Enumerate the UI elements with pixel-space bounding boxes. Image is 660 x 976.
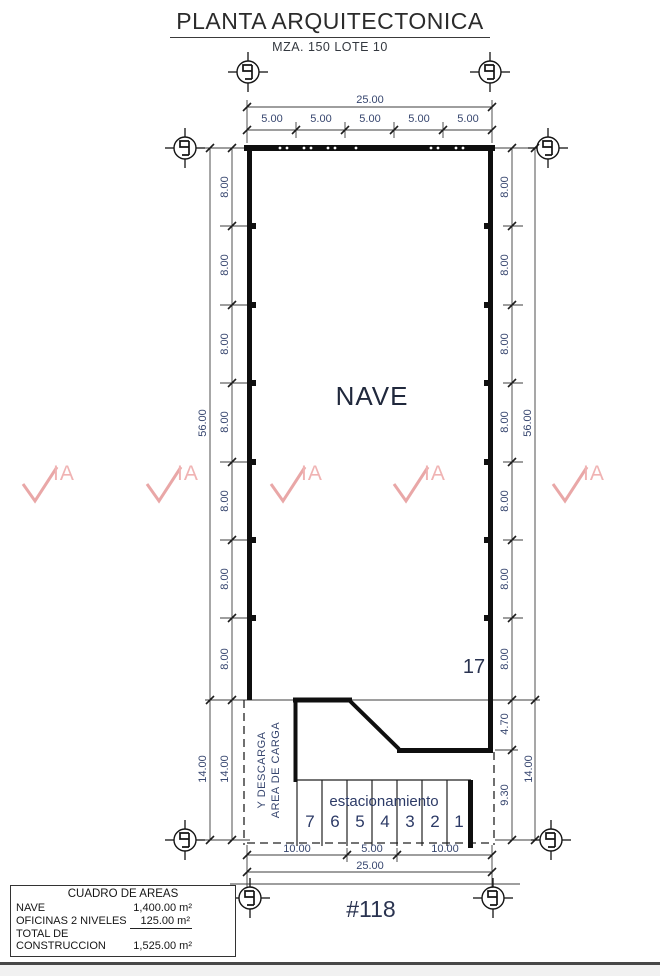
loading-area-line2: AREA DE CARGA	[269, 695, 283, 845]
parking-stall-number: 4	[373, 812, 397, 832]
loading-area-line1: Y DESCARGA	[255, 695, 269, 845]
dim-left-seg: 8.00	[219, 243, 231, 287]
parking-label: estacionamiento	[314, 793, 454, 810]
dim-top-total: 25.00	[340, 94, 400, 106]
dim-left-total: 56.00	[197, 401, 209, 445]
nave-label: NAVE	[302, 381, 442, 412]
areas-table: CUADRO DE AREAS NAVE 1,400.00 m² OFICINA…	[10, 885, 236, 957]
parking-stall-number: 2	[423, 812, 447, 832]
dim-left-seg: 8.00	[219, 557, 231, 601]
dim-right-lower-total: 14.00	[523, 747, 535, 791]
dim-left-seg: 8.00	[219, 400, 231, 444]
areas-row-value: 1,525.00 m²	[133, 940, 192, 952]
parking-stall-number: 5	[348, 812, 372, 832]
dim-right-seg: 8.00	[499, 557, 511, 601]
grid-bubble-top-left	[228, 52, 268, 92]
grid-bubble-top-right	[470, 52, 510, 92]
dim-bottom-seg: 10.00	[421, 843, 469, 855]
areas-row-label: NAVE	[16, 902, 45, 914]
areas-row-label-line2: CONSTRUCCION	[16, 940, 106, 952]
dim-right-total: 56.00	[522, 401, 534, 445]
street-address-label: #118	[311, 896, 431, 923]
grid-bubble-right-upper	[528, 128, 568, 168]
areas-table-title: CUADRO DE AREAS	[11, 888, 235, 900]
parking-stall-number: 6	[323, 812, 347, 832]
dim-right-470: 4.70	[499, 702, 511, 746]
dim-right-seg: 8.00	[499, 400, 511, 444]
dim-top-seg: 5.00	[301, 113, 341, 125]
dim-bottom-seg: 5.00	[350, 843, 394, 855]
dim-left-seg: 8.00	[219, 637, 231, 681]
dim-top-seg: 5.00	[399, 113, 439, 125]
architectural-plan-sheet: IA IA IA IA IA	[0, 0, 660, 976]
parking-stall-number: 1	[447, 812, 471, 832]
areas-row-label: OFICINAS 2 NIVELES	[16, 915, 127, 927]
areas-row-value: 1,400.00 m²	[133, 902, 192, 914]
sheet-bottom-margin	[0, 965, 660, 976]
dim-bottom-total: 25.00	[340, 860, 400, 872]
dim-left-seg: 8.00	[219, 165, 231, 209]
dim-left-lower-total: 14.00	[197, 747, 209, 791]
dim-top-seg: 5.00	[448, 113, 488, 125]
parking-stall-number: 3	[398, 812, 422, 832]
areas-row-label-line1: TOTAL DE	[16, 928, 68, 940]
grid-bubble-right-lower	[531, 820, 571, 860]
dim-right-930: 9.30	[499, 773, 511, 817]
dim-top-seg: 5.00	[252, 113, 292, 125]
dim-top-seg: 5.00	[350, 113, 390, 125]
dim-right-seg: 8.00	[499, 322, 511, 366]
parking-stall-number: 7	[298, 812, 322, 832]
dim-left-seg: 8.00	[219, 322, 231, 366]
grid-bubble-left-upper	[165, 128, 205, 168]
dim-right-seg: 8.00	[499, 243, 511, 287]
dim-left-lower-chain: 14.00	[219, 747, 231, 791]
grid-bubble-left-lower	[165, 820, 205, 860]
areas-row-value: 125.00 m²	[130, 915, 192, 929]
page-title: PLANTA ARQUITECTONICA	[0, 8, 660, 38]
dim-left-seg: 8.00	[219, 479, 231, 523]
page-subtitle: MZA. 150 LOTE 10	[0, 40, 660, 54]
loading-area-label: Y DESCARGA AREA DE CARGA	[255, 695, 283, 845]
dim-right-seg: 8.00	[499, 479, 511, 523]
lot-number-label: 17	[444, 656, 504, 679]
dim-right-seg: 8.00	[499, 165, 511, 209]
